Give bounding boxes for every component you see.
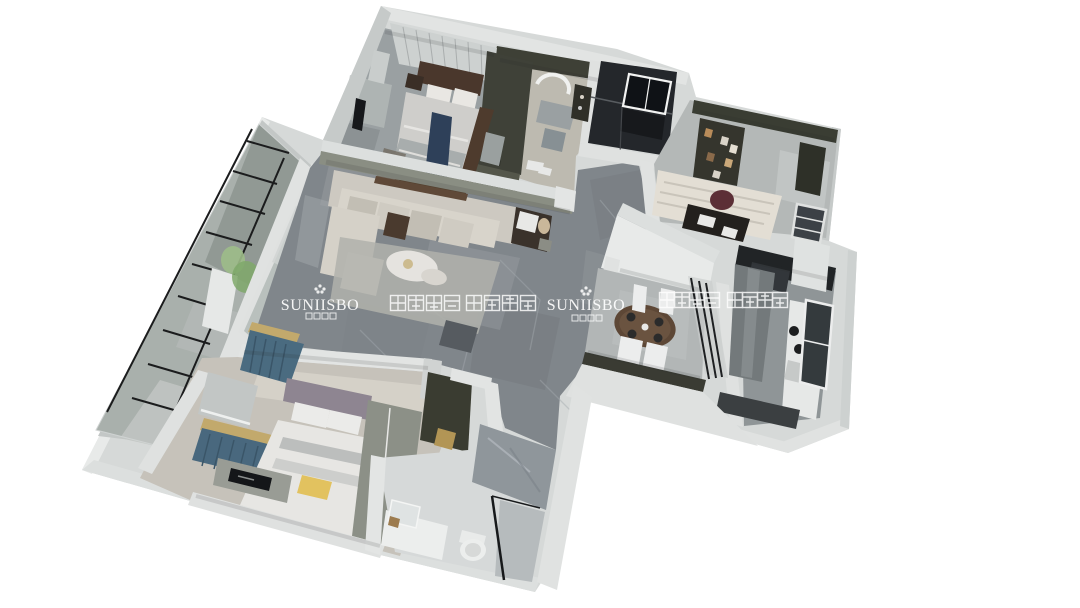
svg-text:SUNIISBO: SUNIISBO — [281, 297, 360, 314]
svg-text:SUNIISBO: SUNIISBO — [547, 297, 626, 314]
